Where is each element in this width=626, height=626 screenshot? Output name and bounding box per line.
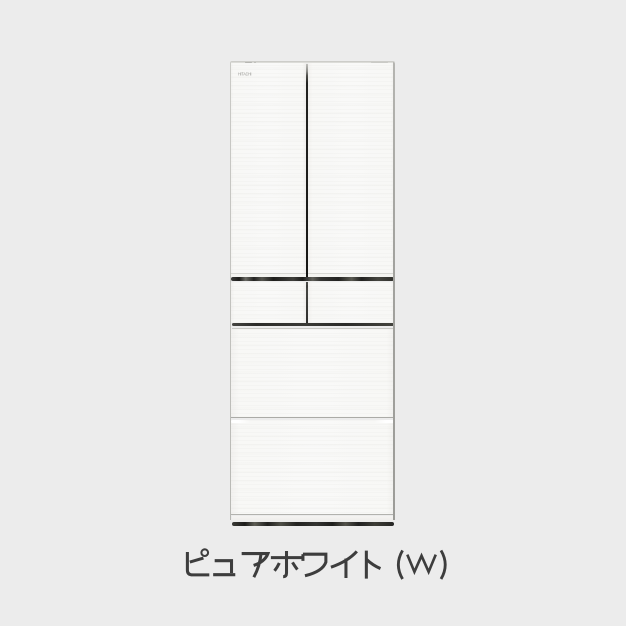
svg-text:HITACHI: HITACHI [238, 71, 251, 76]
